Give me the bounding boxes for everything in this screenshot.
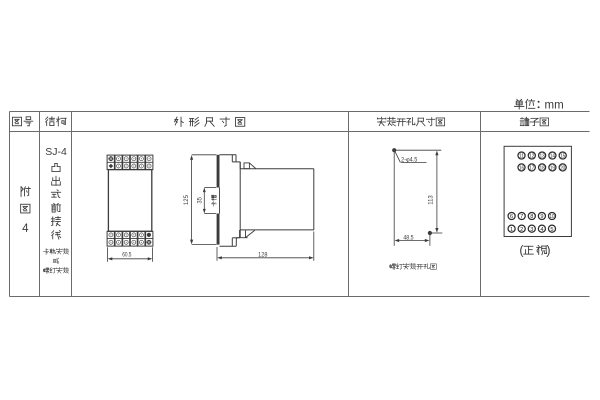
svg-text:9: 9: [540, 214, 543, 220]
svg-text:2: 2: [520, 227, 523, 233]
svg-text:4: 4: [540, 227, 543, 233]
svg-text:2-φ4.5: 2-φ4.5: [401, 157, 418, 164]
svg-text:12: 12: [529, 154, 534, 160]
svg-text:5: 5: [550, 227, 553, 233]
svg-text:125: 125: [183, 195, 190, 206]
svg-text:14: 14: [550, 154, 555, 160]
svg-text:48.5: 48.5: [403, 235, 414, 242]
svg-text:15: 15: [560, 154, 565, 160]
svg-text:4: 4: [22, 223, 29, 235]
svg-text:3: 3: [530, 227, 533, 233]
svg-text:19: 19: [550, 165, 555, 171]
svg-text:7: 7: [520, 214, 523, 220]
svg-text:18: 18: [540, 165, 545, 171]
svg-text:SJ-4: SJ-4: [45, 146, 67, 158]
svg-text:mm: mm: [545, 100, 564, 112]
svg-text:20: 20: [560, 165, 565, 171]
svg-text:6: 6: [510, 214, 513, 220]
svg-text:13: 13: [540, 154, 545, 160]
svg-text:10: 10: [550, 214, 555, 220]
svg-text:11: 11: [519, 154, 524, 160]
svg-text:60.5: 60.5: [122, 251, 132, 258]
svg-text:35: 35: [197, 197, 204, 204]
svg-text:17: 17: [529, 165, 534, 171]
svg-text:113: 113: [428, 195, 435, 205]
svg-text:16: 16: [519, 165, 524, 171]
svg-text:128: 128: [258, 252, 268, 259]
svg-text:): ): [546, 243, 550, 257]
svg-text:8: 8: [530, 214, 533, 220]
svg-text:1: 1: [510, 227, 513, 233]
